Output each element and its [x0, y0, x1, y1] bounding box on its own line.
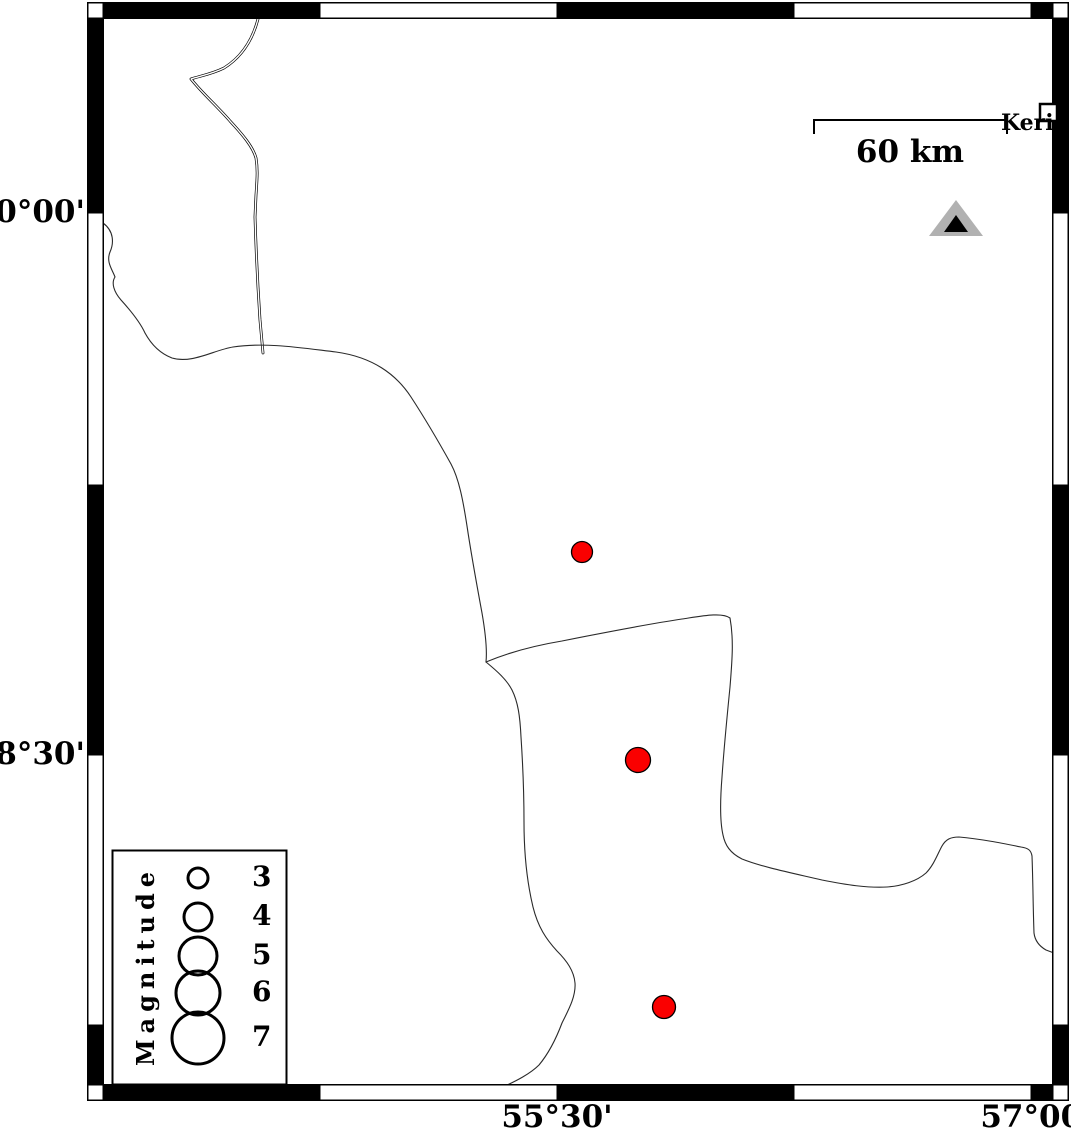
frame-seg: [103, 3, 320, 18]
legend-entry-label: 7: [252, 1023, 271, 1051]
frame-corner: [1053, 1085, 1068, 1100]
frame-seg: [1053, 1025, 1068, 1085]
legend-title: Magnitude: [134, 866, 158, 1066]
axis-label-lat-30: 30°00': [0, 197, 85, 228]
frame-seg: [88, 755, 103, 1025]
frame-seg: [88, 485, 103, 755]
frame-seg: [1031, 1085, 1053, 1100]
boundary-west: [103, 223, 486, 662]
river-double-line: [191, 19, 263, 353]
legend-entry-label: 6: [252, 978, 271, 1006]
frame-corner: [88, 1085, 103, 1100]
boundary-south: [486, 662, 575, 1090]
frame-seg: [557, 3, 794, 18]
scale-bar: [814, 120, 1007, 134]
frame-seg: [103, 1085, 320, 1100]
frame-seg: [557, 1085, 794, 1100]
city-label: Keri: [1001, 112, 1053, 134]
epicenter-marker: [626, 748, 651, 773]
frame-corner: [1053, 3, 1068, 18]
frame-seg: [1053, 485, 1068, 755]
river-double-line-inner: [191, 19, 263, 353]
axis-label-lon-57: 57°00': [980, 1102, 1071, 1133]
scale-bar-label: 60 km: [856, 137, 964, 168]
axis-label-lat-28-30: 28°30': [0, 739, 85, 770]
epicenter-marker: [653, 996, 676, 1019]
seismicity-map: 30°00' 28°30' 55°30' 57°00' 60 km Keri M…: [0, 0, 1071, 1135]
epicenter-marker: [572, 542, 593, 563]
frame-seg: [794, 1085, 1031, 1100]
legend-entry-label: 4: [252, 902, 271, 930]
frame-seg: [88, 18, 103, 213]
frame-seg: [1053, 755, 1068, 1025]
frame-corner: [88, 3, 103, 18]
frame-seg: [794, 3, 1031, 18]
frame-seg: [88, 213, 103, 485]
frame-seg: [88, 1025, 103, 1085]
axis-label-lon-55-30: 55°30': [501, 1102, 612, 1133]
legend-entry-label: 3: [252, 863, 271, 891]
station-triangle-icon: [929, 200, 983, 236]
frame-seg: [1053, 213, 1068, 485]
epicenter-layer: [572, 542, 676, 1019]
map-figure: [0, 0, 1071, 1135]
frame-seg: [1031, 3, 1053, 18]
frame-seg: [320, 3, 557, 18]
frame-seg: [320, 1085, 557, 1100]
boundary-east-loop: [486, 615, 1054, 953]
legend-entry-label: 5: [252, 941, 271, 969]
